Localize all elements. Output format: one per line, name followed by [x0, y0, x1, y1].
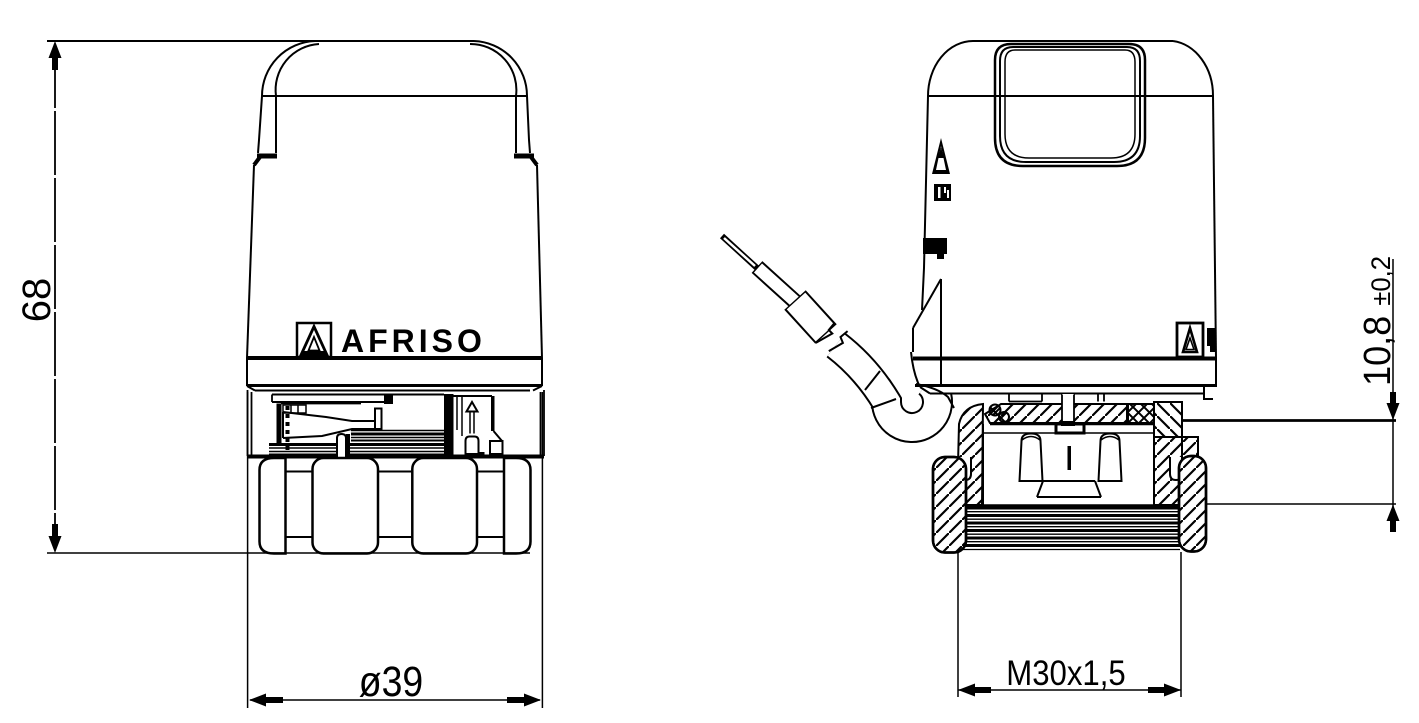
svg-text:AFRISO: AFRISO	[341, 323, 486, 359]
svg-text:M30x1,5: M30x1,5	[1006, 654, 1125, 693]
svg-text:ø39: ø39	[359, 658, 423, 706]
svg-text:68: 68	[15, 278, 59, 323]
